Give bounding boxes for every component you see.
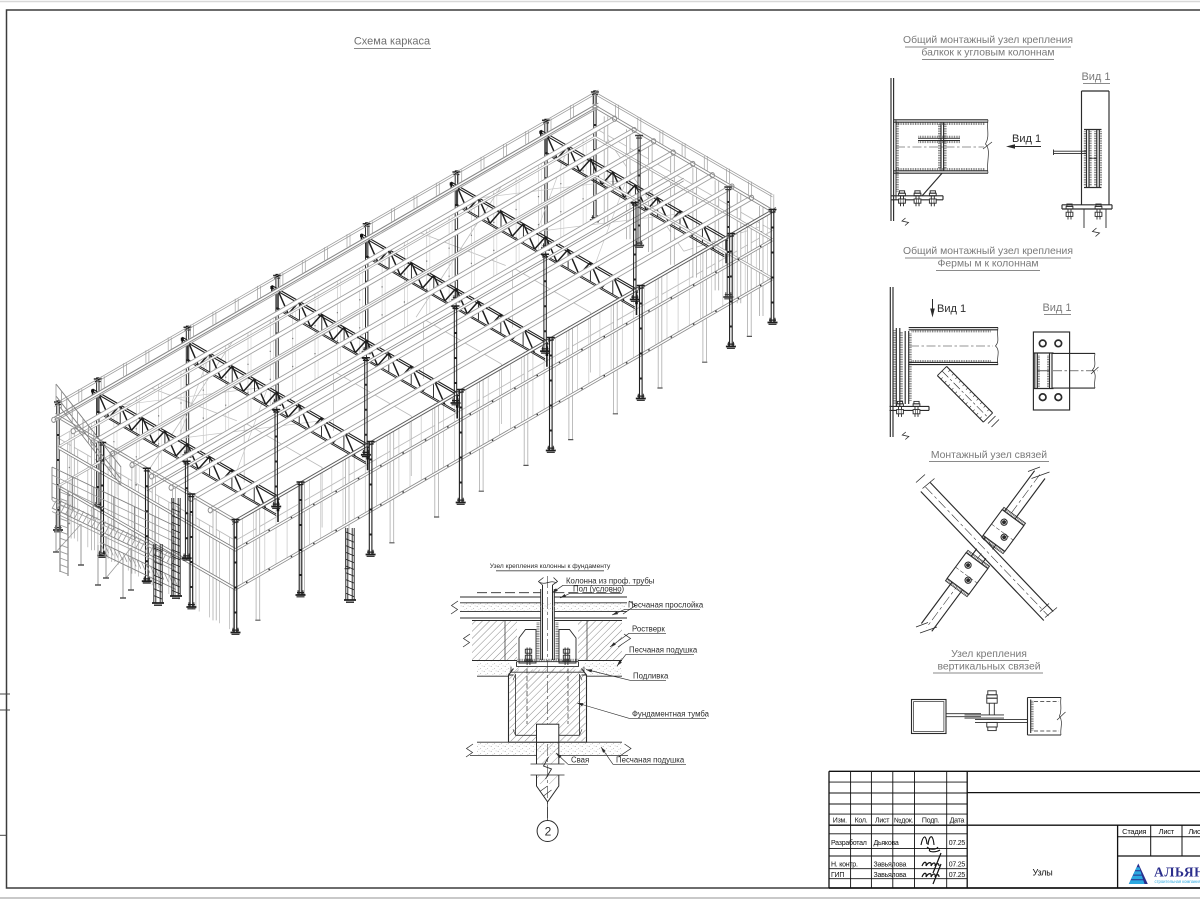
svg-text:Дьякова: Дьякова bbox=[874, 840, 899, 847]
svg-text:Дата: Дата bbox=[950, 818, 965, 825]
svg-text:Узел крепления колонны к фунда: Узел крепления колонны к фундаменту bbox=[490, 563, 611, 570]
svg-text:Подливка: Подливка bbox=[633, 672, 669, 681]
svg-text:Песчаная подушка: Песчаная подушка bbox=[629, 646, 698, 655]
svg-text:Пол (условно): Пол (условно) bbox=[573, 585, 625, 594]
svg-text:Лист: Лист bbox=[1188, 827, 1200, 836]
svg-text:Свая: Свая bbox=[571, 756, 589, 765]
svg-text:Вид 1: Вид 1 bbox=[1012, 133, 1041, 145]
svg-text:Стадия: Стадия bbox=[1122, 827, 1146, 836]
svg-text:Ростверк: Ростверк bbox=[632, 625, 665, 634]
svg-text:Узлы: Узлы bbox=[1033, 868, 1053, 878]
svg-text:07.25: 07.25 bbox=[949, 862, 966, 869]
svg-text:Завьялова: Завьялова bbox=[874, 862, 907, 869]
svg-text:Н. контр.: Н. контр. bbox=[831, 862, 858, 869]
svg-text:Завьялова: Завьялова bbox=[874, 872, 907, 879]
svg-text:Песчаная прослойка: Песчаная прослойка bbox=[628, 601, 704, 610]
svg-text:Схема каркаса: Схема каркаса bbox=[354, 36, 431, 48]
svg-text:строительная компания: строительная компания bbox=[1155, 879, 1200, 884]
svg-text:Монтажный узел связей: Монтажный узел связей bbox=[931, 450, 1047, 461]
svg-text:Разработал: Разработал bbox=[831, 839, 867, 847]
svg-text:балкок к угловым колоннам: балкок к угловым колоннам bbox=[921, 47, 1054, 59]
svg-text:Фермы м к колоннам: Фермы м к колоннам bbox=[938, 259, 1039, 270]
svg-text:АЛЬЯНС: АЛЬЯНС bbox=[1154, 865, 1200, 880]
svg-text:Узел крепления: Узел крепления bbox=[951, 649, 1027, 660]
svg-text:Изм.: Изм. bbox=[833, 818, 847, 825]
svg-text:Кол.: Кол. bbox=[855, 818, 868, 825]
svg-text:Вид 1: Вид 1 bbox=[1081, 71, 1110, 83]
svg-text:2: 2 bbox=[545, 825, 552, 839]
svg-text:вертикальных связей: вертикальных связей bbox=[937, 662, 1040, 673]
svg-text:07.25: 07.25 bbox=[949, 840, 966, 847]
svg-text:Лист: Лист bbox=[1159, 827, 1175, 836]
svg-text:Подп.: Подп. bbox=[922, 818, 940, 825]
svg-text:Вид 1: Вид 1 bbox=[937, 303, 966, 315]
svg-text:ГИП: ГИП bbox=[831, 872, 844, 879]
svg-text:Лист: Лист bbox=[875, 818, 890, 825]
svg-text:Фундаментная тумба: Фундаментная тумба bbox=[632, 710, 710, 719]
svg-text:07.25: 07.25 bbox=[949, 872, 966, 879]
svg-text:Вид 1: Вид 1 bbox=[1042, 302, 1071, 314]
svg-text:Общий монтажный узел крепления: Общий монтажный узел крепления bbox=[903, 34, 1073, 46]
svg-text:Песчаная подушка: Песчаная подушка bbox=[616, 756, 685, 765]
svg-text:№док.: №док. bbox=[894, 818, 914, 825]
svg-text:Общий монтажный узел крепления: Общий монтажный узел крепления bbox=[903, 245, 1073, 257]
